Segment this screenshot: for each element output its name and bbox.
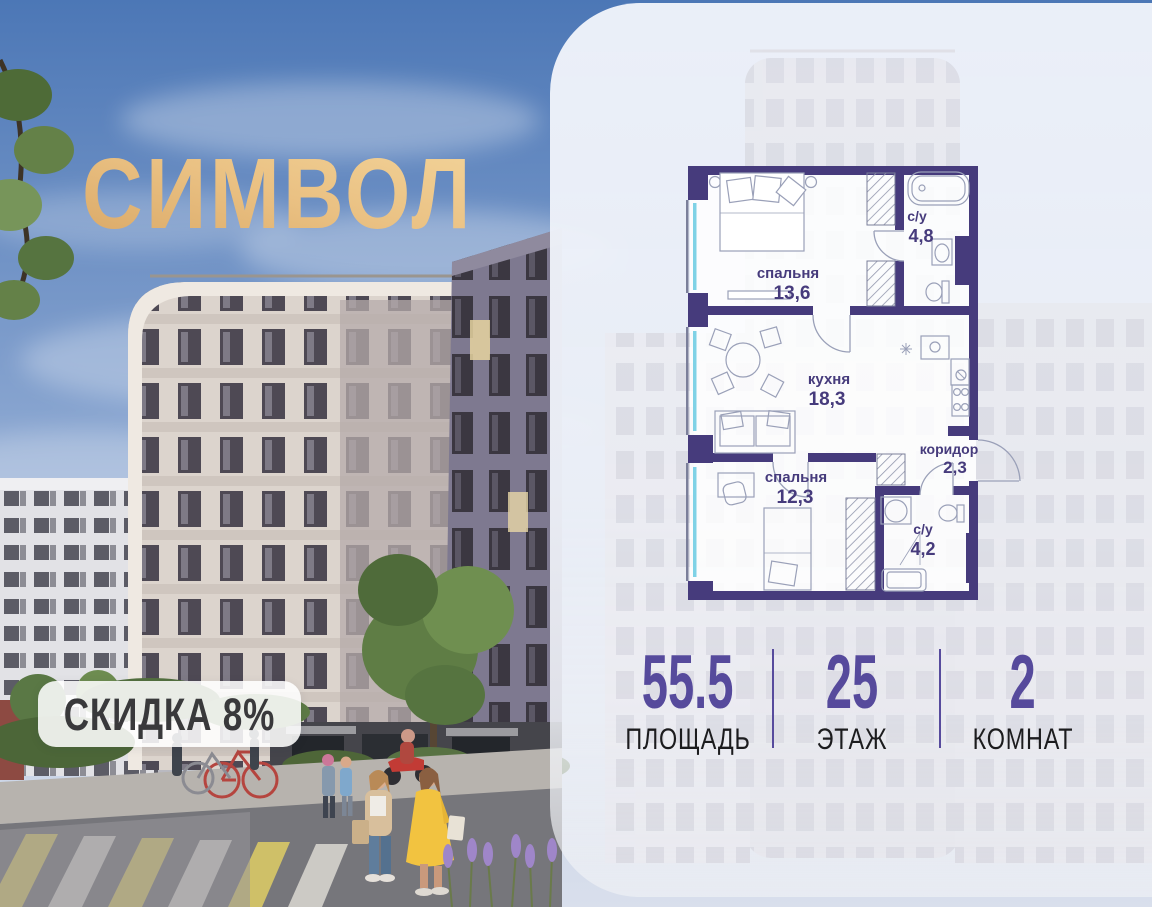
promo-banner[interactable]: СИМВОЛ СКИДКА 8% [0, 0, 1152, 907]
room-area-bedroom-1: 13,6 [774, 283, 811, 304]
entrance-door-arc [978, 440, 1020, 481]
room-label-bedroom-1: спальня [757, 265, 819, 282]
room-label-bedroom-2: спальня [765, 469, 827, 486]
room-area-bathroom-1: 4,8 [908, 226, 933, 246]
info-panel: спальня 13,6 с/у 4,8 кухня 18,3 коридор … [550, 3, 1152, 897]
brand-logo-text: СИМВОЛ [82, 146, 474, 250]
room-label-bathroom-2: с/у [913, 521, 933, 537]
room-area-kitchen: 18,3 [809, 389, 846, 410]
room-label-kitchen: кухня [808, 371, 850, 388]
brand-logo: СИМВОЛ [82, 146, 502, 254]
room-label-corridor: коридор [920, 441, 979, 457]
room-area-bedroom-2: 12,3 [777, 487, 814, 508]
floor-plan: спальня 13,6 с/у 4,8 кухня 18,3 коридор … [668, 153, 1040, 620]
room-label-bathroom-1: с/у [907, 208, 927, 224]
discount-badge: СКИДКА 8% [38, 681, 301, 747]
discount-badge-text: СКИДКА 8% [64, 692, 275, 737]
room-area-corridor: 2,3 [943, 458, 967, 477]
room-area-bathroom-2: 4,2 [910, 539, 935, 559]
